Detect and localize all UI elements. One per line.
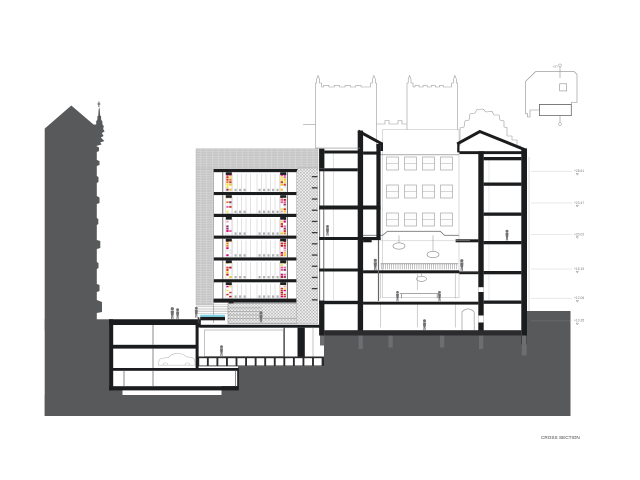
svg-text:KEY: KEY <box>553 64 558 68</box>
svg-text:+23.47: +23.47 <box>574 201 584 205</box>
svg-text:+28.61: +28.61 <box>574 169 584 173</box>
svg-text:+20.02: +20.02 <box>574 232 584 236</box>
svg-text:CROSS SECTION: CROSS SECTION <box>541 435 580 440</box>
svg-text:+15.15: +15.15 <box>574 267 584 271</box>
svg-text:+10.35: +10.35 <box>574 319 584 323</box>
svg-text:+12.06: +12.06 <box>574 296 584 300</box>
